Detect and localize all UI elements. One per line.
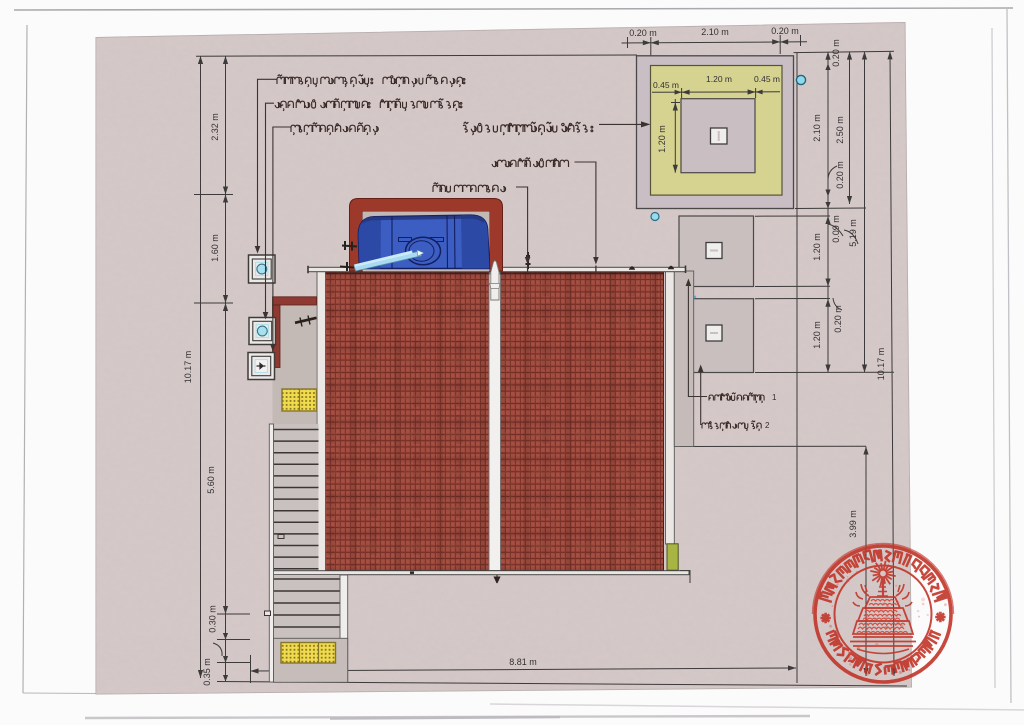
svg-text:0.09 m: 0.09 m [831,215,841,243]
svg-text:0.30 m: 0.30 m [208,605,218,633]
svg-text:0.45 m: 0.45 m [754,74,780,84]
svg-text:1: 1 [772,393,777,402]
svg-text:0.35 m: 0.35 m [202,658,212,686]
svg-text:2.50 m: 2.50 m [835,116,845,144]
svg-text:0.20 m: 0.20 m [835,161,845,189]
svg-text:2.10 m: 2.10 m [812,114,822,142]
svg-text:0.20 m: 0.20 m [629,28,657,38]
svg-text:2.32 m: 2.32 m [210,113,220,141]
svg-text:5.19 m: 5.19 m [848,219,858,247]
svg-text:2.10 m: 2.10 m [701,27,729,37]
svg-text:3.99 m: 3.99 m [848,510,858,538]
svg-text:1.20 m: 1.20 m [657,125,667,153]
svg-text:0.20 m: 0.20 m [771,26,799,36]
svg-text:8.81 m: 8.81 m [509,657,537,667]
svg-text:1.20 m: 1.20 m [706,74,732,84]
svg-text:5.60 m: 5.60 m [206,466,216,494]
svg-text:1.20 m: 1.20 m [812,321,822,349]
svg-text:1.60 m: 1.60 m [210,234,220,262]
svg-text:0.20 m: 0.20 m [831,39,841,67]
svg-text:0.45 m: 0.45 m [653,80,679,90]
svg-text:1.20 m: 1.20 m [812,233,822,261]
svg-text:10.17 m: 10.17 m [876,348,886,381]
svg-text:10.17 m: 10.17 m [183,351,193,384]
svg-text:2: 2 [765,421,770,430]
